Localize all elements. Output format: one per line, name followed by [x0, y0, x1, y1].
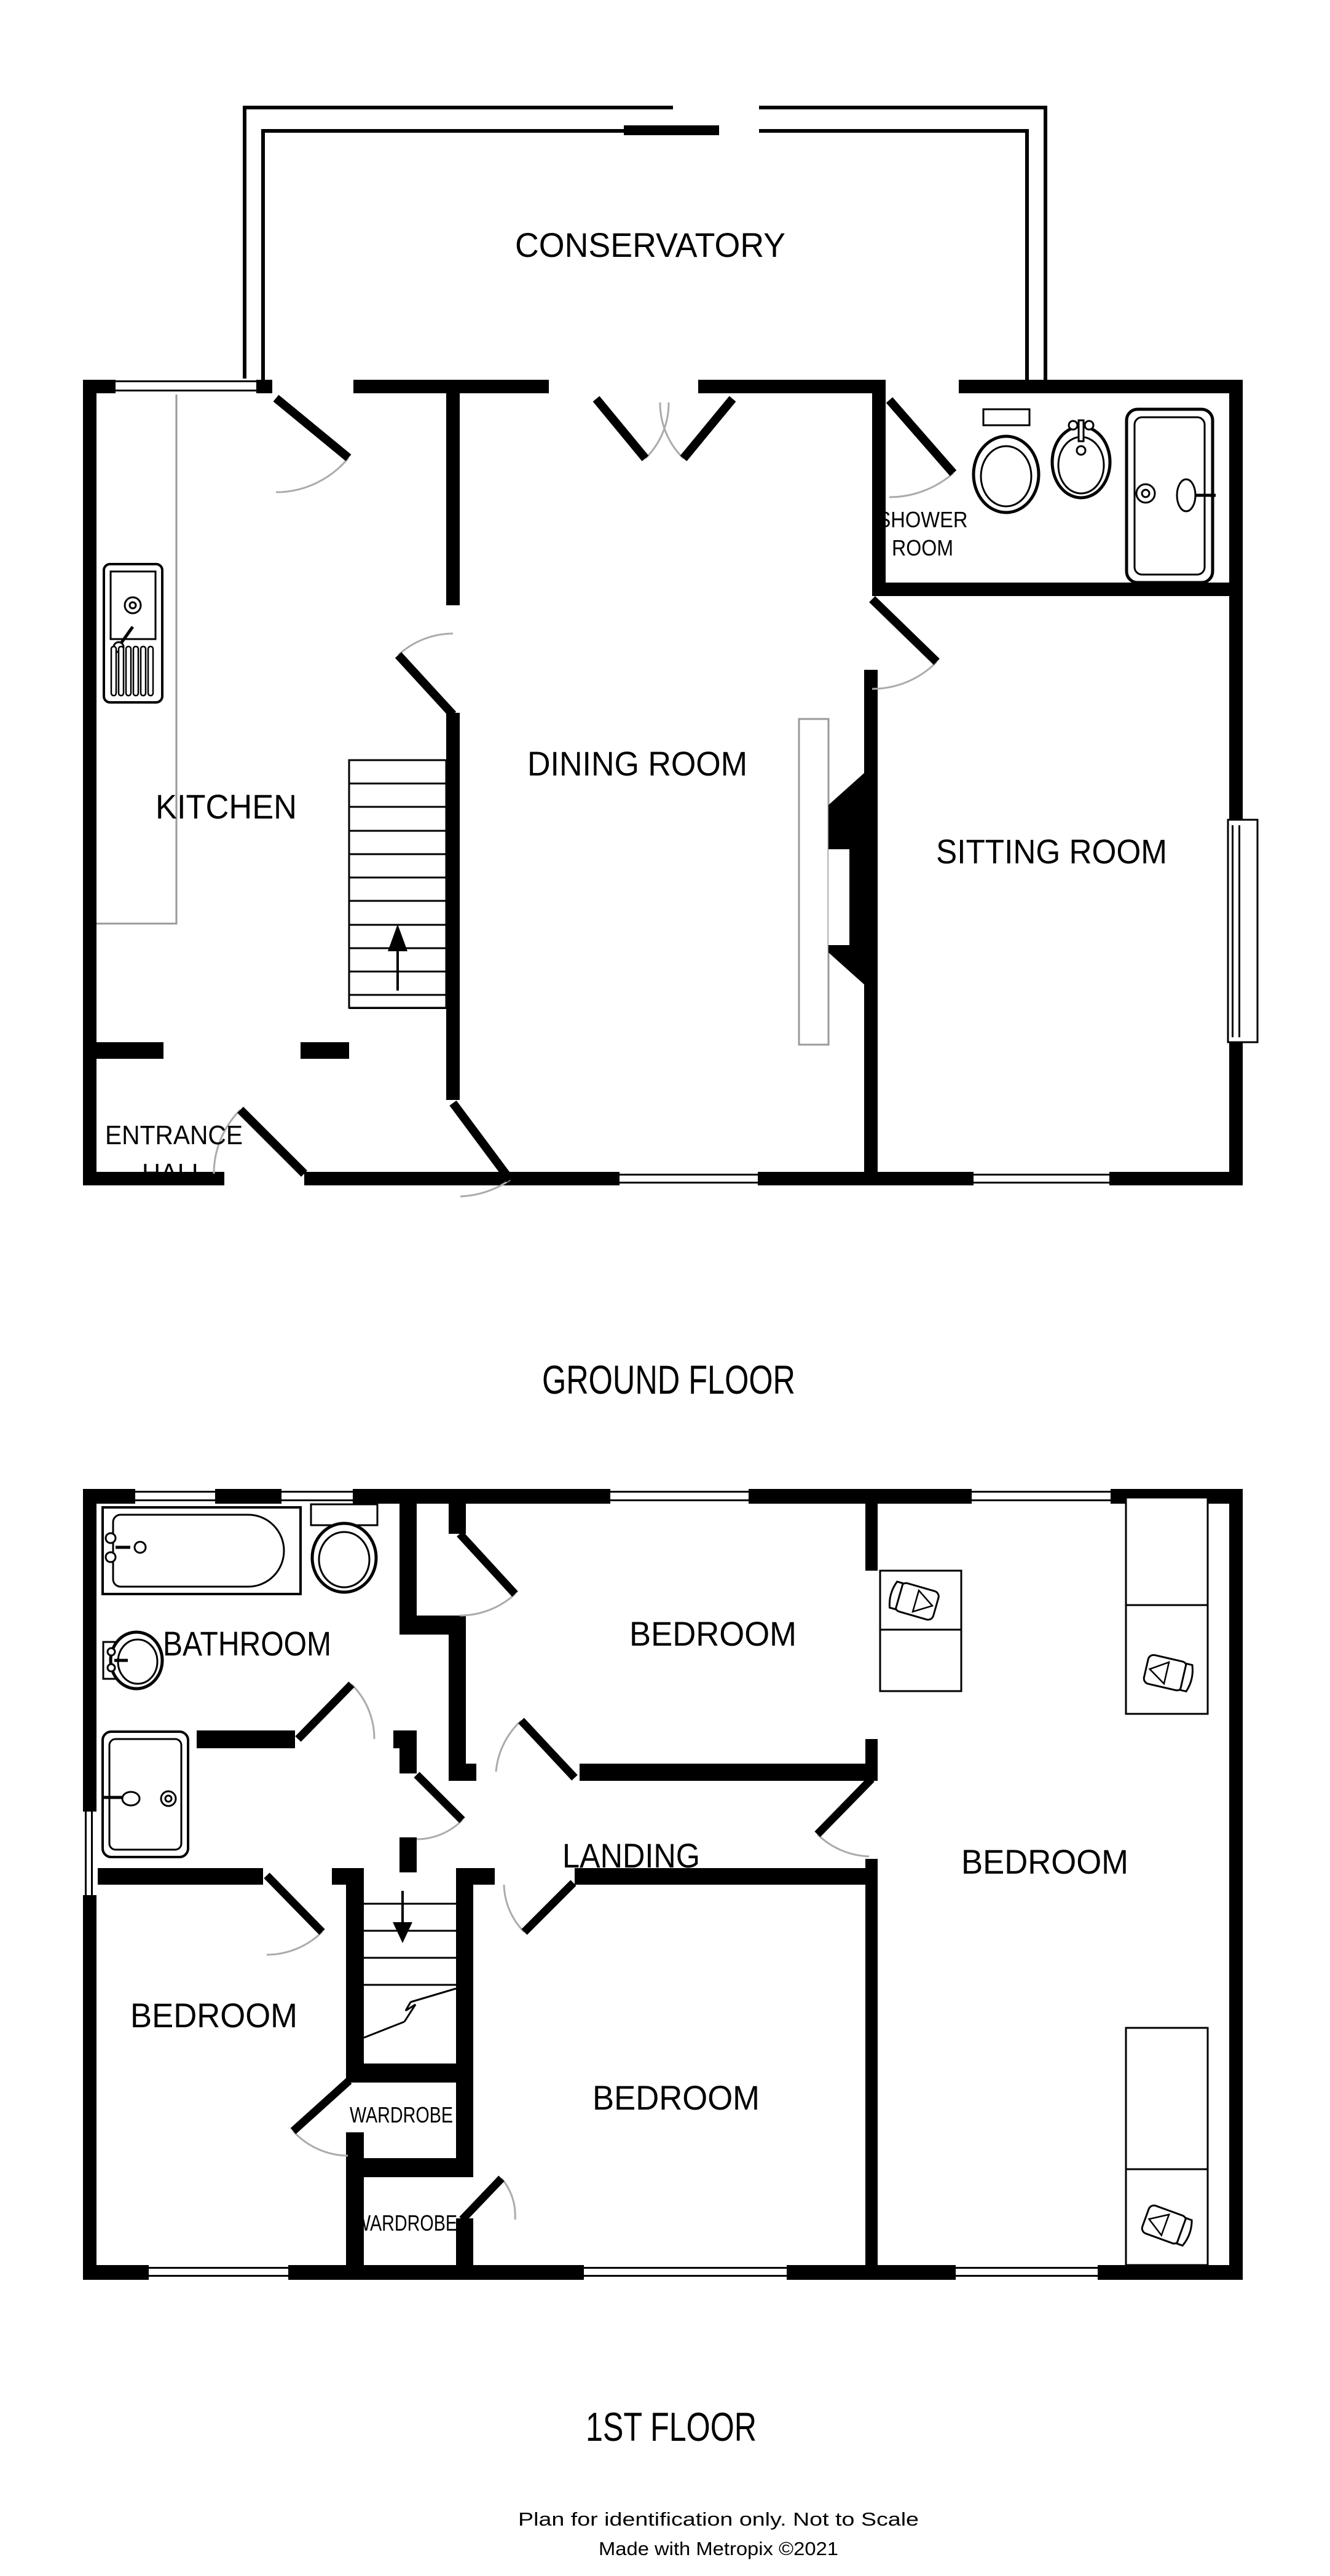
floor-plan-page: CONSERVATORY KITCHEN DINING ROOM SITTING… — [0, 0, 1330, 2576]
desk-unit-left — [880, 1571, 961, 1691]
entrance-hall-label-line1: ENTRANCE — [105, 1120, 243, 1150]
sitting-window-bottom — [974, 1171, 1109, 1187]
footer: Plan for identification only. Not to Sca… — [518, 2508, 919, 2559]
stairs-up — [349, 760, 446, 1008]
wardrobe-lower-label: WARDROBE — [354, 2210, 457, 2236]
bedroom-right-bottom-window — [956, 2264, 1098, 2280]
door-bedroom-middle — [504, 1883, 573, 1932]
dining-room-label: DINING ROOM — [527, 744, 747, 783]
door-bathroom — [298, 1684, 374, 1739]
shower-room-label-line1: SHOWER — [878, 507, 968, 532]
bedroom-top-label: BEDROOM — [629, 1614, 797, 1653]
french-doors-dining — [596, 399, 733, 458]
door-wardrobe-upper — [293, 2081, 349, 2156]
door-bedroom-right — [817, 1779, 872, 1856]
door-wardrobe-lower — [462, 2178, 515, 2220]
door-bedroom-top-landing — [496, 1721, 575, 1778]
fireplace — [799, 719, 864, 1045]
stairs-down — [364, 1891, 456, 2038]
door-bathroom-bedroom-top — [460, 1534, 515, 1616]
bathroom-window-2 — [281, 1488, 353, 1504]
landing-side-window — [82, 1812, 98, 1895]
footer-credit: Made with Metropix ©2021 — [599, 2538, 838, 2559]
bedroom-right-label: BEDROOM — [961, 1842, 1128, 1881]
sitting-room-label: SITTING ROOM — [936, 832, 1167, 871]
door-conservatory-kitchen — [276, 398, 348, 492]
bedroom-right-furniture — [880, 1498, 1208, 2265]
basin-icon — [1052, 420, 1110, 498]
bathroom-label: BATHROOM — [163, 1624, 331, 1663]
fireplace-recess — [828, 849, 849, 945]
entrance-hall-label-line2: HALL — [142, 1158, 206, 1188]
door-cloakroom — [417, 1775, 462, 1839]
dining-window — [620, 1171, 758, 1187]
shower-room-label-line2: ROOM — [892, 535, 953, 560]
bedroom-right-top-window — [972, 1488, 1111, 1504]
bathroom-fixtures — [103, 1504, 377, 1857]
door-shower-room — [889, 400, 953, 497]
desk-unit-right-upper — [1126, 1498, 1208, 1714]
bedroom-middle-label: BEDROOM — [592, 2078, 760, 2117]
bedroom-left-label: BEDROOM — [130, 1996, 297, 2035]
door-kitchen-dining — [398, 634, 453, 715]
toilet-icon — [974, 409, 1039, 512]
stairs-down-arrow — [393, 1891, 412, 1943]
landing-label: LANDING — [562, 1836, 700, 1875]
conservatory-label: CONSERVATORY — [515, 226, 785, 264]
bathroom-window-1 — [135, 1488, 215, 1504]
wardrobe-upper-label: WARDROBE — [350, 2102, 453, 2127]
cloakroom-sink-icon — [103, 1732, 188, 1857]
kitchen-sink-icon — [104, 564, 162, 702]
shower-icon — [1127, 409, 1216, 583]
first-floor-walls — [83, 1489, 1243, 2280]
bedroom-left-window — [149, 2264, 288, 2280]
door-dining-sitting — [872, 599, 937, 689]
bedroom-top-window — [610, 1488, 749, 1504]
kitchen-label: KITCHEN — [155, 787, 297, 826]
first-floor-title: 1ST FLOOR — [586, 2404, 757, 2449]
ground-floor-title: GROUND FLOOR — [542, 1357, 795, 1402]
conservatory-door-leaf — [624, 125, 719, 135]
sitting-window-right — [1228, 820, 1257, 1042]
shower-room-fixtures — [974, 409, 1216, 583]
bedroom-middle-window — [584, 2264, 787, 2280]
bath-icon — [103, 1507, 301, 1594]
footer-disclaimer: Plan for identification only. Not to Sca… — [518, 2508, 919, 2530]
door-bedroom-left — [267, 1875, 322, 1955]
kitchen-window — [116, 379, 256, 395]
ground-floor-plan: CONSERVATORY KITCHEN DINING ROOM SITTING… — [83, 106, 1257, 1402]
desk-unit-right-lower — [1126, 2028, 1208, 2265]
toilet-icon-first-floor — [311, 1504, 377, 1592]
basin-icon-first-floor — [103, 1632, 162, 1689]
first-floor-plan: BATHROOM BEDROOM BEDROOM LANDING BEDROOM… — [82, 1488, 1243, 2449]
